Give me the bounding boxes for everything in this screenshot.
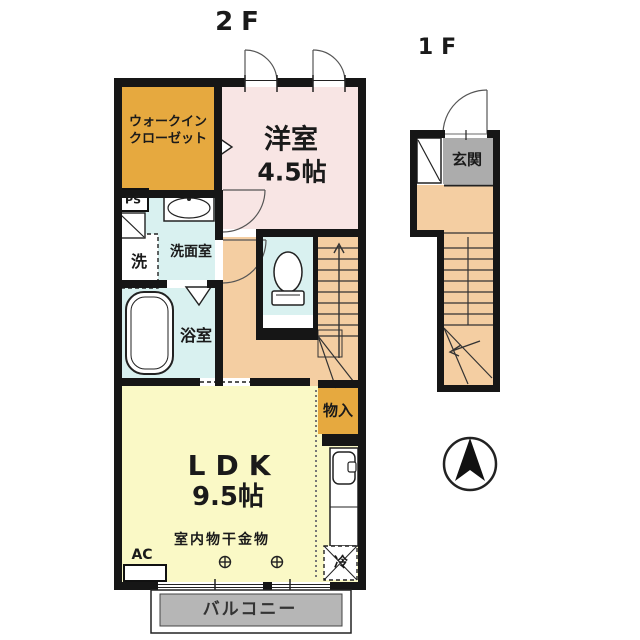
laundry-hardware-label: 室内物干金物 (174, 533, 270, 547)
floor1-plan (410, 90, 500, 392)
toilet-door-gap (263, 315, 313, 328)
fridge-label: 冷 (334, 556, 348, 570)
kitchen-faucet (348, 462, 356, 472)
shoe-cabinet (417, 138, 441, 183)
washroom-label: 洗面室 (170, 245, 212, 259)
floorplan-canvas: 2F 1F ウォークイン クローゼット 洋室 4.5帖 PS 洗面室 洗 浴室 … (0, 0, 640, 640)
hanging-point-icon (272, 557, 283, 568)
toilet-fixture (272, 252, 304, 305)
washroom-sink (164, 194, 214, 221)
bathtub (126, 292, 173, 374)
western-room-size-label: 4.5帖 (257, 160, 326, 185)
window-latch (263, 582, 272, 590)
kitchen-counter (330, 448, 358, 546)
storage-label: 物入 (323, 404, 353, 419)
ldk-label: LDK (178, 452, 281, 480)
shaft-box (119, 213, 145, 238)
pipe-space-label: PS (125, 195, 141, 206)
compass-icon (444, 438, 496, 490)
floor1-title: 1F (418, 37, 464, 59)
stairs-2f-area (317, 237, 358, 388)
balcony-label: バルコニー (203, 602, 298, 619)
floor2-title: 2F (215, 9, 267, 35)
ldk-size-label: 9.5帖 (192, 484, 264, 510)
bathroom-label: 浴室 (180, 328, 212, 344)
walkin-closet-label-line1: ウォークイン (129, 116, 207, 129)
entrance-door-arc (443, 90, 487, 134)
ac-label: AC (131, 548, 152, 562)
walkin-closet-label-line2: クローゼット (129, 133, 207, 146)
western-room-label: 洋室 (264, 127, 318, 154)
ac-unit-box (124, 565, 166, 581)
hanging-point-icon (220, 557, 231, 568)
washer-label: 洗 (131, 254, 147, 270)
floorplan-drawing (0, 0, 640, 640)
hall-1f-area (417, 185, 493, 237)
entrance-label: 玄関 (452, 153, 482, 168)
